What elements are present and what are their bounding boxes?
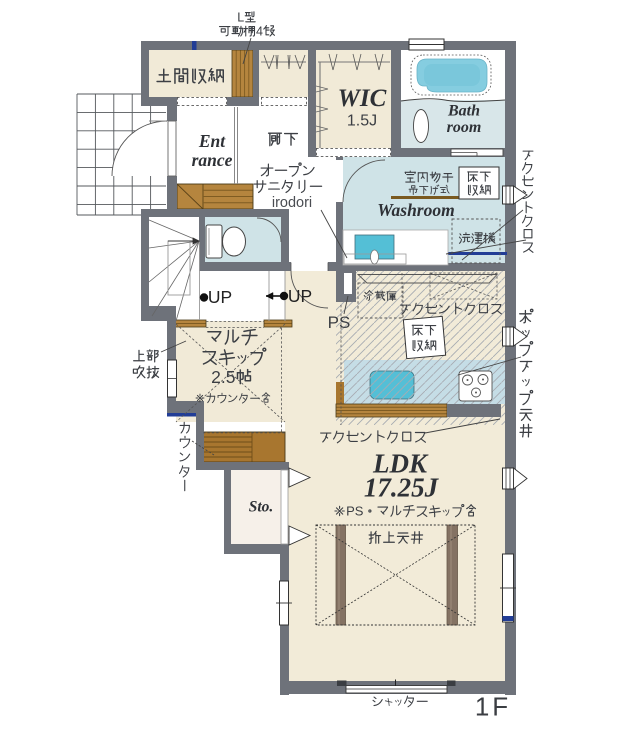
svg-text:L: L: [237, 10, 244, 24]
svg-text:Ent: Ent: [198, 131, 226, 151]
svg-text:Washroom: Washroom: [377, 200, 454, 220]
svg-text:rance: rance: [192, 150, 233, 170]
svg-text:1F: 1F: [475, 692, 511, 722]
svg-text:PS: PS: [346, 504, 364, 519]
svg-text:PS: PS: [328, 313, 351, 332]
svg-text:WIC: WIC: [338, 85, 387, 112]
svg-text:4: 4: [256, 24, 263, 38]
svg-text:irodori: irodori: [272, 195, 312, 211]
svg-text:1.5J: 1.5J: [347, 113, 377, 130]
svg-text:UP: UP: [288, 286, 312, 306]
svg-text:Bath: Bath: [447, 103, 480, 120]
svg-text:UP: UP: [208, 287, 232, 307]
svg-text:17.25J: 17.25J: [364, 472, 440, 502]
svg-text:room: room: [447, 119, 482, 136]
svg-text:Sto.: Sto.: [249, 498, 274, 515]
svg-text:2.5: 2.5: [211, 367, 235, 387]
